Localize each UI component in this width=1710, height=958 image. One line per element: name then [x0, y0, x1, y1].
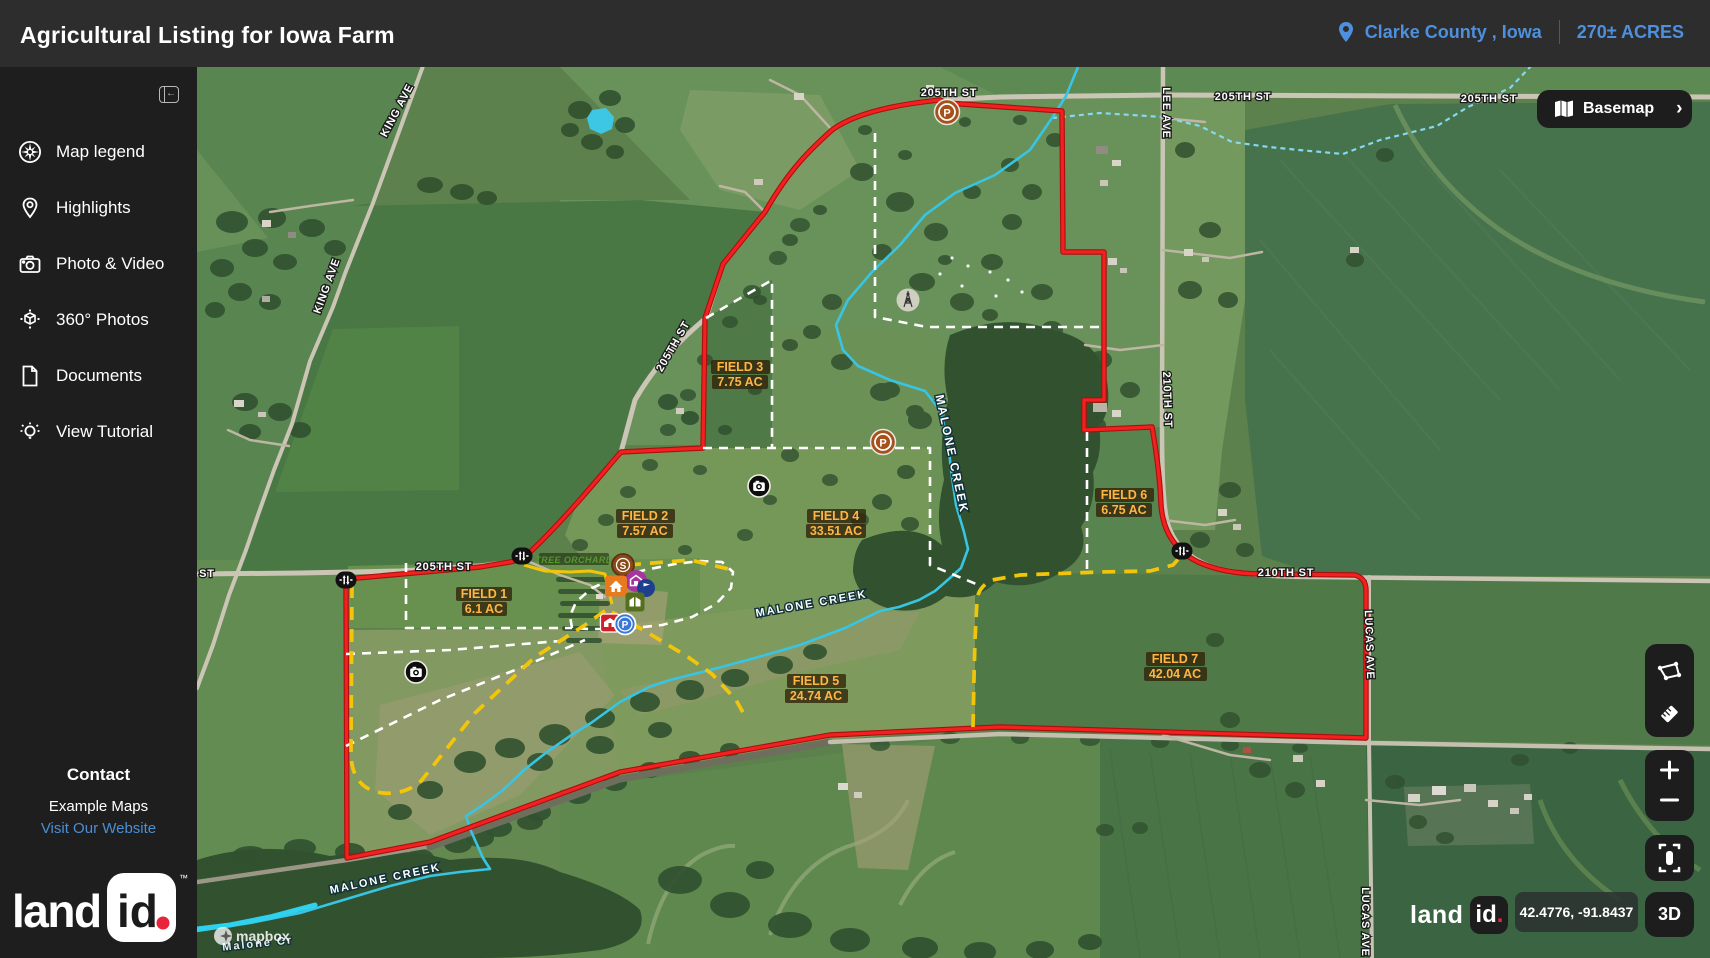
svg-text:id: id [117, 885, 158, 937]
svg-text:FIELD 3: FIELD 3 [717, 360, 764, 374]
svg-text:205TH ST: 205TH ST [416, 561, 473, 573]
svg-text:24.74 AC: 24.74 AC [790, 689, 842, 703]
svg-text:210TH ST: 210TH ST [1258, 567, 1315, 579]
svg-text:7.57 AC: 7.57 AC [622, 524, 667, 538]
svg-text:land: land [12, 885, 101, 937]
svg-text:205TH ST: 205TH ST [1215, 91, 1272, 103]
svg-text:7.75 AC: 7.75 AC [717, 375, 762, 389]
svg-text:FIELD 1: FIELD 1 [461, 587, 508, 601]
svg-text:42.04 AC: 42.04 AC [1149, 667, 1201, 681]
svg-text:210TH ST: 210TH ST [1160, 371, 1174, 428]
svg-text:33.51 AC: 33.51 AC [810, 524, 862, 538]
svg-text:FIELD 5: FIELD 5 [793, 674, 840, 688]
svg-text:™: ™ [179, 873, 188, 883]
svg-text:ST: ST [199, 568, 215, 580]
svg-text:FIELD 7: FIELD 7 [1152, 652, 1199, 666]
svg-text:FIELD 2: FIELD 2 [622, 509, 669, 523]
svg-text:P: P [879, 438, 886, 450]
svg-text:205TH ST: 205TH ST [1461, 93, 1518, 105]
svg-text:mapbox: mapbox [236, 928, 290, 944]
svg-text:6.75 AC: 6.75 AC [1101, 503, 1146, 517]
svg-text:FIELD 4: FIELD 4 [813, 509, 860, 523]
svg-text:205TH ST: 205TH ST [921, 87, 978, 99]
svg-text:FIELD 6: FIELD 6 [1101, 488, 1148, 502]
svg-text:LEE AVE: LEE AVE [1160, 87, 1172, 138]
svg-text:LUCAS AVE: LUCAS AVE [1362, 610, 1376, 680]
svg-text:TREE ORCHARD: TREE ORCHARD [535, 555, 612, 565]
svg-text:S: S [620, 561, 627, 572]
svg-text:P: P [622, 620, 629, 631]
svg-text:P: P [943, 108, 950, 120]
svg-text:6.1 AC: 6.1 AC [465, 602, 503, 616]
svg-text:LUCAS AVE: LUCAS AVE [1359, 887, 1371, 957]
